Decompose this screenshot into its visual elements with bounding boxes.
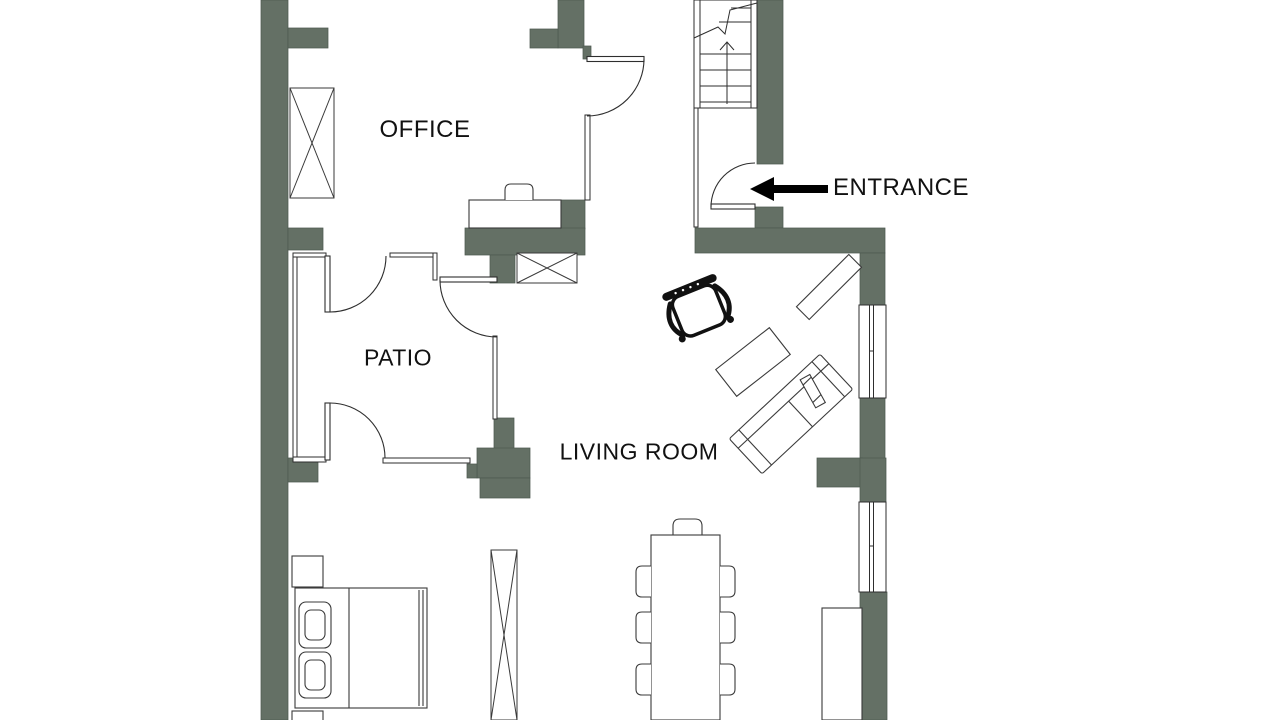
wall-right-c [860, 458, 886, 503]
living-room-label: LIVING ROOM [560, 439, 719, 466]
wall-right-b [860, 397, 885, 459]
dining-chair-left [636, 612, 651, 643]
patio-door-right [440, 277, 497, 337]
window-living [859, 305, 886, 398]
floor-plan-drawing [0, 0, 1280, 720]
office-chair [505, 184, 533, 200]
wall-center-pier-stem [494, 418, 514, 449]
dining-chair-left [636, 566, 651, 597]
office-desk [469, 200, 561, 228]
coffee-table [716, 328, 791, 397]
wall-top-center-vertical [558, 0, 584, 48]
window-dining [859, 502, 886, 592]
wall-office-patio-divider [288, 228, 323, 250]
entrance-label: ENTRANCE [833, 174, 969, 202]
patio-door-bottom-left [325, 403, 385, 460]
dining-chair-left [636, 664, 651, 695]
wall-office-right-thin [585, 115, 590, 200]
wall-entrance-jamb [755, 207, 783, 228]
dining-chair-right [720, 566, 735, 597]
pillow-inner [305, 610, 325, 640]
pillow-inner [305, 660, 325, 690]
wall-patio-right-thin [493, 336, 497, 419]
wall-office-top-stub [288, 28, 328, 48]
wall-center-pier-tab [467, 464, 477, 478]
dining-chair-right [720, 612, 735, 643]
wall-patio-top-2 [390, 253, 436, 257]
staircase [694, 0, 757, 108]
wall-patio-bottom-2 [383, 458, 470, 463]
wall-living-top [695, 228, 885, 253]
bed [295, 588, 427, 708]
wall-office-right-pier [560, 200, 585, 229]
wall-center-pier-lower [480, 478, 530, 498]
counter [822, 608, 862, 720]
sideboard [796, 254, 861, 319]
wall-patio-top-return [433, 253, 437, 280]
wall-patio-left-thin [293, 253, 297, 459]
dining-table [651, 535, 720, 720]
wall-patio-bottom-1 [293, 457, 326, 462]
nightstand-top [292, 556, 323, 587]
wall-right-a [860, 253, 885, 306]
nightstand-bottom [292, 711, 323, 720]
dining-chair-right [720, 664, 735, 695]
wall-office-bottom [465, 228, 585, 255]
wall-stair-right [757, 0, 783, 164]
office-door [587, 57, 644, 117]
dining-set [636, 519, 735, 720]
entrance-arrow-icon [750, 177, 828, 201]
wall-top-center-horizontal [530, 29, 558, 48]
wall-right-pier [817, 458, 862, 487]
patio-door-top-left [325, 256, 386, 312]
armchair [661, 275, 737, 344]
entrance-door [711, 163, 755, 209]
office-closet [290, 88, 334, 198]
floor-plan: OFFICE PATIO LIVING ROOM ENTRANCE [0, 0, 1280, 720]
patio-label: PATIO [364, 345, 432, 372]
wall-center-pier-body [477, 448, 530, 478]
office-label: OFFICE [380, 116, 471, 144]
dining-chair-top [673, 519, 702, 536]
wall-patio-top-1 [293, 253, 326, 257]
hall-cabinet [517, 253, 577, 283]
wall-left-outer [261, 0, 288, 720]
wall-right-d [860, 592, 887, 720]
bedroom-wardrobe [491, 550, 517, 720]
